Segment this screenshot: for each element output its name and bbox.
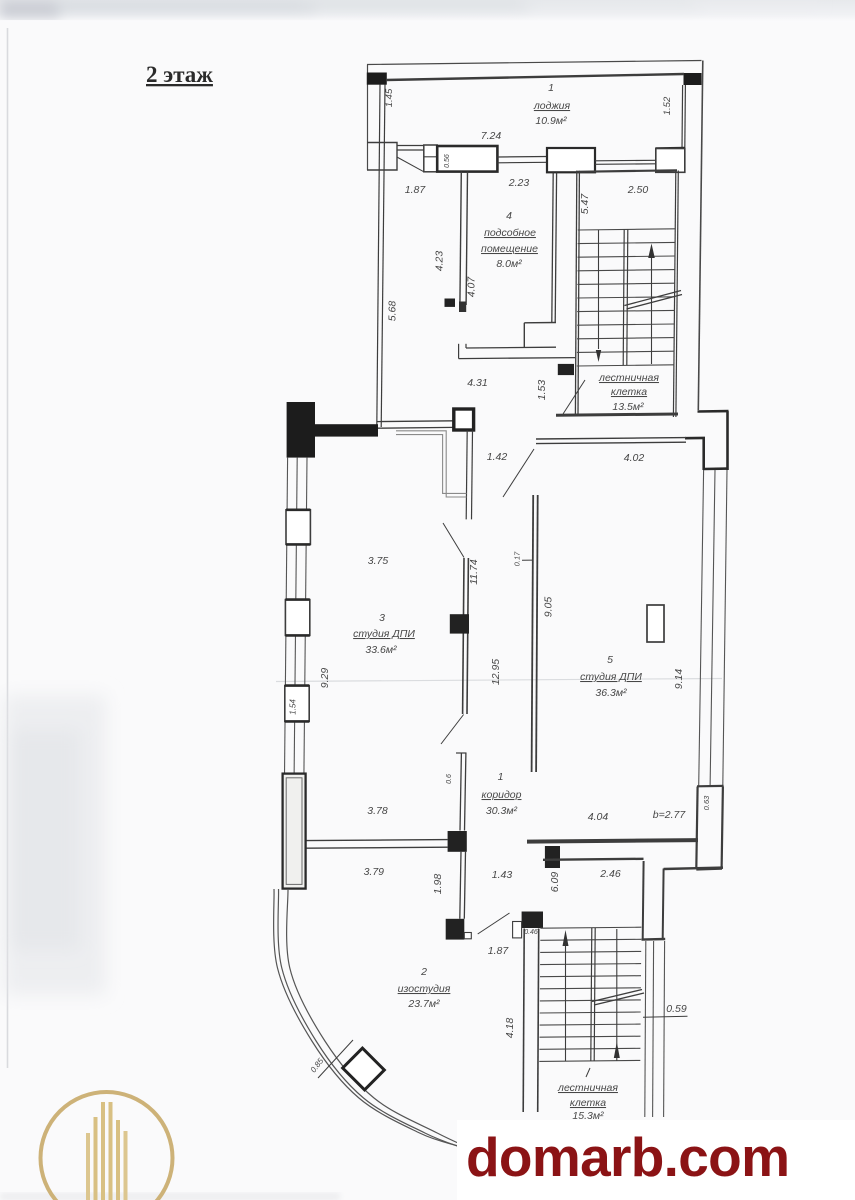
svg-text:1: 1: [548, 82, 554, 94]
svg-text:0.56: 0.56: [444, 154, 451, 168]
svg-text:коридор: коридор: [482, 789, 522, 801]
svg-text:4.23: 4.23: [434, 251, 446, 272]
svg-text:0.6: 0.6: [446, 774, 453, 784]
svg-text:1.42: 1.42: [487, 451, 508, 463]
svg-text:1.53: 1.53: [536, 380, 548, 401]
svg-text:10.9м²: 10.9м²: [535, 115, 567, 127]
svg-text:9.14: 9.14: [673, 669, 685, 690]
svg-text:4.18: 4.18: [504, 1018, 516, 1039]
svg-text:11.74: 11.74: [468, 559, 480, 585]
svg-text:1.45: 1.45: [384, 88, 395, 107]
svg-text:лестничная: лестничная: [557, 1082, 618, 1094]
svg-text:4: 4: [506, 210, 512, 222]
svg-text:6.09: 6.09: [549, 872, 561, 893]
svg-text:0.46: 0.46: [524, 929, 538, 936]
svg-text:0.59: 0.59: [666, 1003, 687, 1015]
svg-text:5.68: 5.68: [387, 301, 399, 322]
svg-text:2.46: 2.46: [599, 868, 621, 880]
svg-text:b=2.77: b=2.77: [653, 809, 687, 821]
svg-text:7.24: 7.24: [481, 130, 502, 142]
svg-text:9.29: 9.29: [319, 668, 331, 689]
svg-text:4.07: 4.07: [466, 276, 478, 298]
svg-text:36.3м²: 36.3м²: [595, 687, 627, 699]
svg-text:студия ДПИ: студия ДПИ: [580, 671, 642, 683]
svg-text:лоджия: лоджия: [533, 100, 571, 112]
svg-text:13.5м²: 13.5м²: [612, 401, 644, 413]
svg-text:4.04: 4.04: [588, 811, 609, 823]
svg-text:помещение: помещение: [481, 243, 538, 255]
svg-text:domarb.com: domarb.com: [466, 1126, 790, 1188]
svg-text:2.23: 2.23: [508, 177, 530, 189]
svg-text:33.6м²: 33.6м²: [365, 644, 397, 656]
svg-text:1.87: 1.87: [488, 945, 510, 957]
svg-text:9.05: 9.05: [543, 597, 555, 618]
svg-text:3.75: 3.75: [368, 555, 389, 567]
svg-text:23.7м²: 23.7м²: [407, 998, 440, 1010]
svg-text:изостудия: изостудия: [398, 983, 451, 995]
svg-text:1.98: 1.98: [432, 874, 444, 895]
svg-text:1.54: 1.54: [289, 699, 298, 715]
svg-text:3.78: 3.78: [367, 805, 388, 817]
svg-text:2 этаж: 2 этаж: [146, 62, 213, 87]
svg-text:2.50: 2.50: [627, 184, 649, 196]
svg-text:0.63: 0.63: [702, 795, 711, 810]
svg-text:8.0м²: 8.0м²: [496, 258, 522, 270]
svg-text:клетка: клетка: [611, 386, 647, 398]
svg-text:1.43: 1.43: [492, 869, 513, 881]
svg-text:30.3м²: 30.3м²: [486, 805, 518, 817]
svg-text:1: 1: [498, 771, 504, 783]
svg-text:5: 5: [607, 654, 613, 666]
svg-text:лестничная: лестничная: [598, 372, 659, 384]
svg-text:подсобное: подсобное: [484, 227, 536, 239]
svg-text:12.95: 12.95: [490, 659, 502, 685]
svg-text:1.87: 1.87: [405, 184, 427, 196]
svg-text:1.52: 1.52: [662, 96, 673, 115]
svg-text:0.17: 0.17: [513, 551, 522, 566]
svg-text:5.47: 5.47: [579, 193, 591, 215]
svg-text:4.31: 4.31: [467, 377, 487, 389]
svg-text:3: 3: [379, 612, 385, 624]
svg-text:студия ДПИ: студия ДПИ: [353, 628, 415, 640]
svg-text:4.02: 4.02: [624, 452, 645, 464]
svg-text:клетка: клетка: [570, 1097, 606, 1109]
svg-text:2: 2: [420, 966, 427, 978]
svg-text:3.79: 3.79: [364, 866, 385, 878]
